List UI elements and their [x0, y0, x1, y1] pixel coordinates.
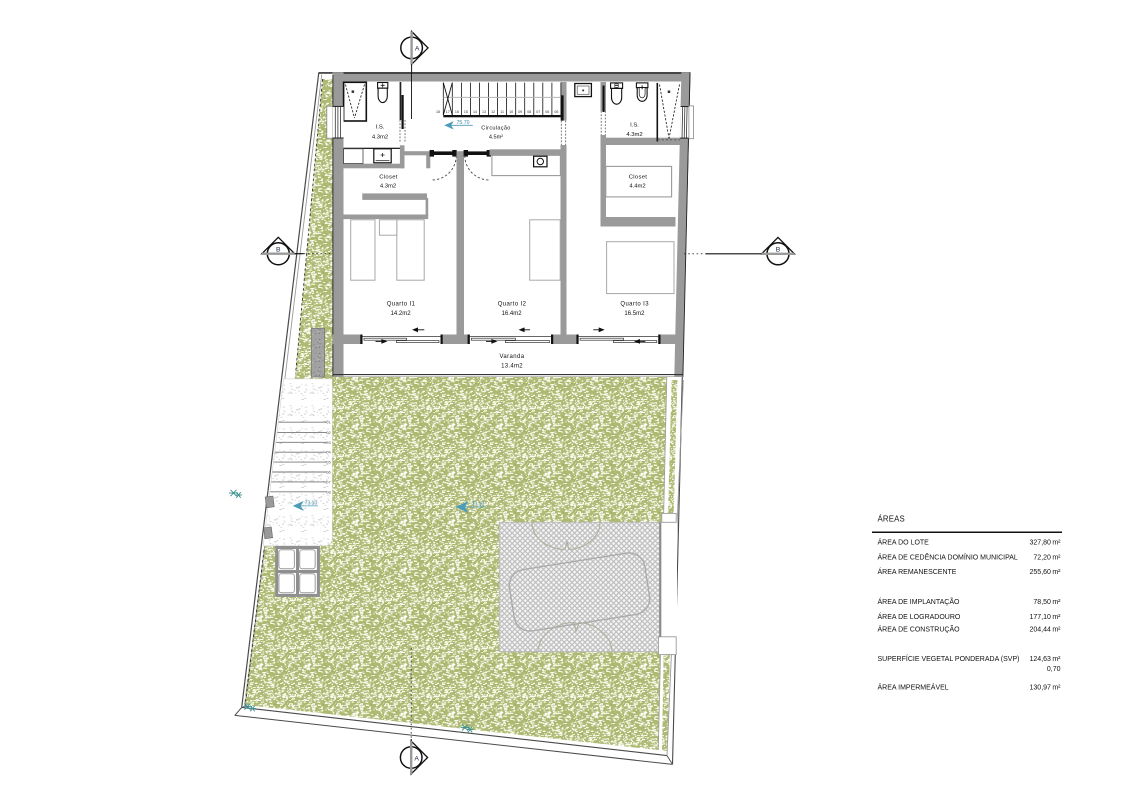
svg-text:SUPERFÍCIE VEGETAL PONDERADA (: SUPERFÍCIE VEGETAL PONDERADA (SVP) [878, 654, 1020, 663]
svg-text:204,44 m²: 204,44 m² [1030, 627, 1062, 634]
svg-text:ÁREA IMPERMEÁVEL: ÁREA IMPERMEÁVEL [878, 682, 949, 691]
svg-text:01: 01 [326, 420, 331, 425]
svg-text:73.10: 73.10 [305, 500, 318, 506]
svg-text:130,97 m²: 130,97 m² [1030, 684, 1062, 691]
svg-text:B: B [776, 247, 781, 254]
svg-text:177,10 m²: 177,10 m² [1030, 614, 1062, 621]
svg-text:ÁREA DE CEDÊNCIA DOMÍNIO MUNIC: ÁREA DE CEDÊNCIA DOMÍNIO MUNICIPAL [878, 552, 1018, 561]
svg-text:07: 07 [536, 110, 540, 114]
svg-text:13.4m2: 13.4m2 [501, 363, 523, 369]
svg-text:ÁREA DE LOGRADOURO: ÁREA DE LOGRADOURO [878, 612, 961, 621]
svg-text:Quarto I3: Quarto I3 [620, 302, 649, 308]
svg-text:Circulação: Circulação [481, 126, 510, 132]
svg-text:18: 18 [436, 110, 440, 114]
svg-text:04: 04 [326, 450, 331, 455]
svg-text:0,70: 0,70 [1047, 666, 1061, 673]
svg-text:ÁREA REMANESCENTE: ÁREA REMANESCENTE [878, 567, 957, 576]
svg-text:05: 05 [326, 460, 331, 465]
svg-text:16.5m2: 16.5m2 [624, 311, 645, 317]
svg-text:4.5m²: 4.5m² [489, 135, 503, 141]
svg-text:07: 07 [326, 479, 331, 484]
svg-text:06: 06 [326, 470, 331, 475]
svg-text:16.4m2: 16.4m2 [502, 311, 523, 317]
svg-text:Quarto I1: Quarto I1 [387, 302, 416, 308]
svg-text:14.2m2: 14.2m2 [391, 311, 412, 317]
svg-text:B: B [276, 247, 281, 254]
svg-text:12: 12 [491, 110, 495, 114]
svg-text:4.4m2: 4.4m2 [629, 183, 645, 189]
svg-text:72,20 m²: 72,20 m² [1033, 554, 1061, 561]
svg-text:I.S.: I.S. [376, 124, 385, 130]
svg-text:ÁREAS: ÁREAS [878, 515, 905, 524]
svg-text:75.70: 75.70 [457, 120, 470, 126]
svg-text:78,50 m²: 78,50 m² [1033, 599, 1061, 606]
svg-text:08: 08 [326, 489, 331, 494]
svg-text:Quarto I2: Quarto I2 [498, 302, 527, 308]
svg-text:09: 09 [518, 110, 522, 114]
svg-text:14: 14 [473, 110, 477, 114]
svg-text:03: 03 [326, 440, 331, 445]
svg-text:ÁREA DE IMPLANTAÇÃO: ÁREA DE IMPLANTAÇÃO [878, 597, 961, 606]
svg-text:4.3m2: 4.3m2 [372, 134, 388, 140]
svg-text:16: 16 [455, 110, 459, 114]
svg-text:ÁREA DO LOTE: ÁREA DO LOTE [878, 538, 930, 547]
svg-text:08: 08 [527, 110, 531, 114]
svg-text:255,60 m²: 255,60 m² [1030, 569, 1062, 576]
svg-text:13: 13 [482, 110, 486, 114]
svg-text:Closet: Closet [629, 174, 648, 180]
svg-text:17: 17 [446, 110, 450, 114]
svg-text:Varanda: Varanda [499, 354, 524, 360]
svg-text:02: 02 [326, 430, 331, 435]
svg-text:4.3m2: 4.3m2 [380, 184, 396, 190]
svg-text:Closet: Closet [379, 175, 398, 181]
svg-text:15: 15 [464, 110, 468, 114]
svg-text:327,80 m²: 327,80 m² [1030, 540, 1062, 547]
svg-text:A: A [414, 755, 419, 762]
svg-text:11: 11 [500, 110, 504, 114]
svg-text:4.3m2: 4.3m2 [626, 132, 642, 138]
svg-text:73.10: 73.10 [472, 501, 485, 507]
svg-text:10: 10 [509, 110, 513, 114]
svg-text:ÁREA DE CONSTRUÇÃO: ÁREA DE CONSTRUÇÃO [878, 625, 961, 634]
svg-text:A: A [415, 46, 420, 53]
svg-text:124,63 m²: 124,63 m² [1030, 656, 1062, 663]
svg-text:I.S.: I.S. [630, 123, 639, 129]
svg-text:05: 05 [554, 110, 558, 114]
svg-text:06: 06 [545, 110, 549, 114]
